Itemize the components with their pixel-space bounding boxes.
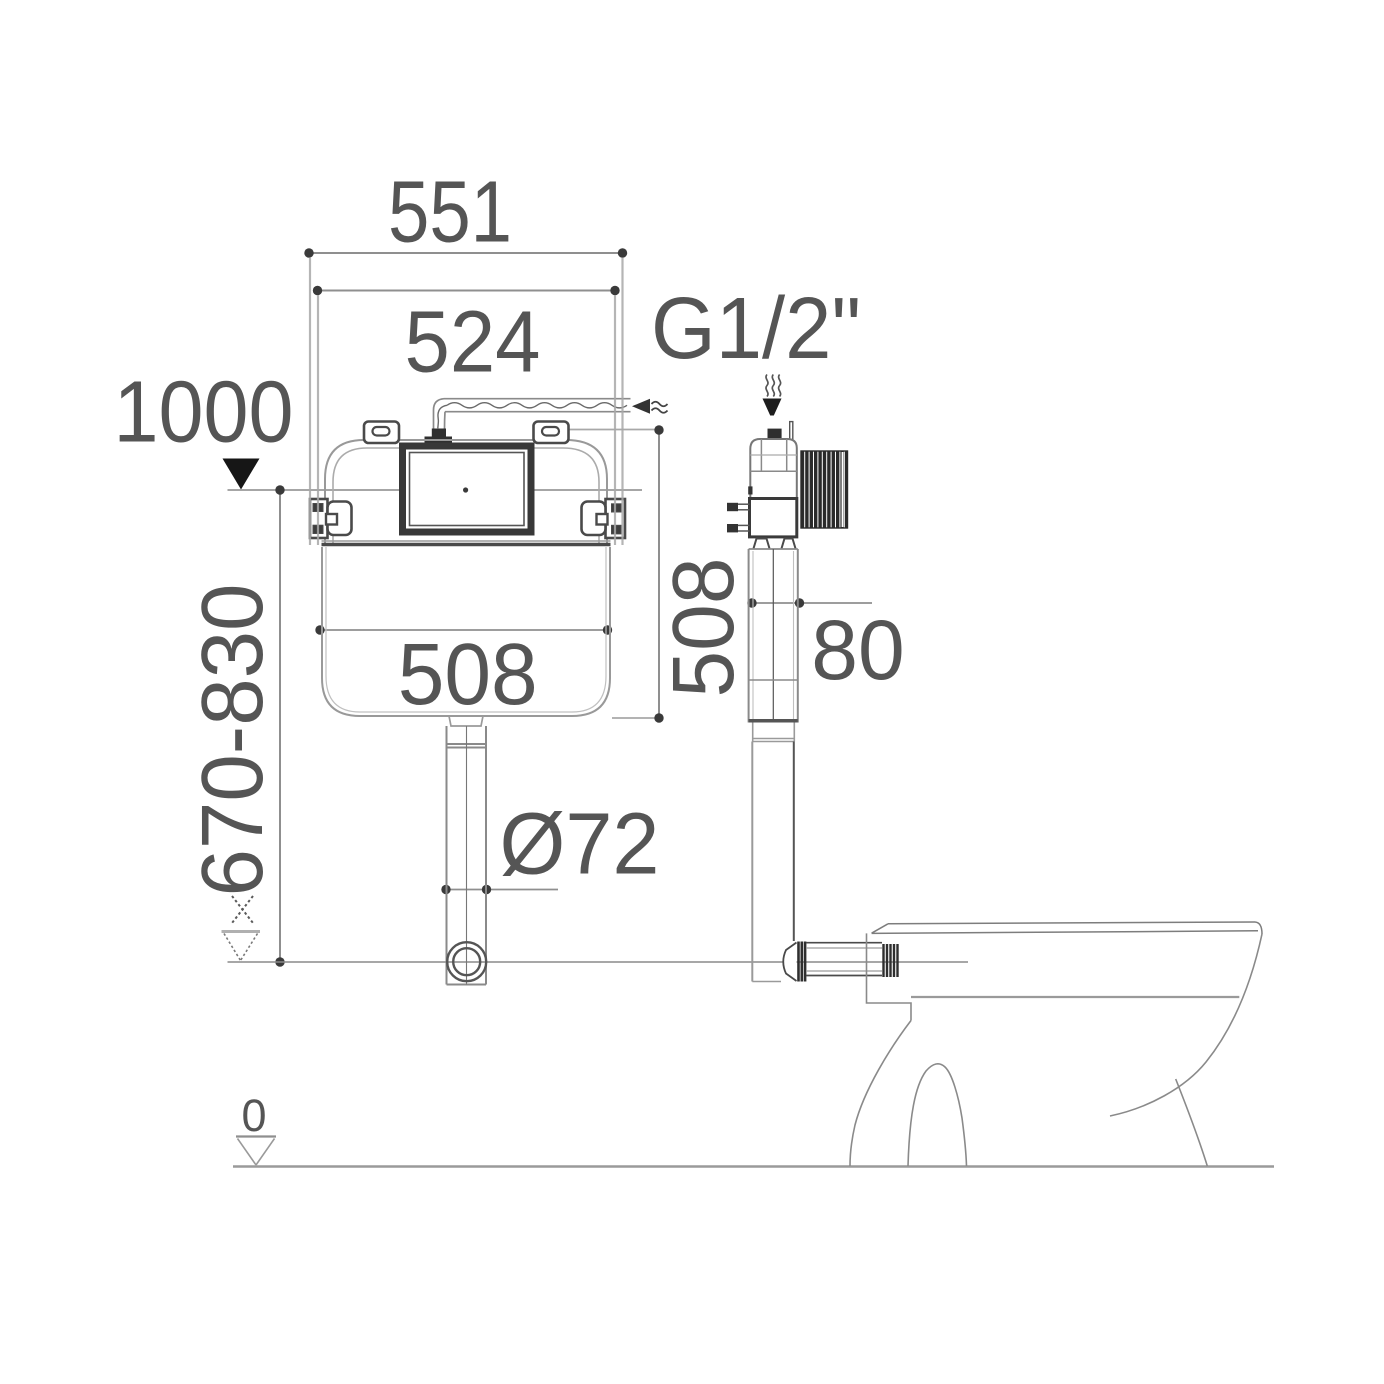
svg-text:1000: 1000	[114, 364, 294, 461]
svg-text:551: 551	[388, 164, 512, 261]
svg-text:508: 508	[398, 626, 538, 723]
svg-text:524: 524	[405, 293, 541, 390]
svg-text:Ø72: Ø72	[500, 796, 660, 893]
svg-text:G1/2": G1/2"	[651, 280, 861, 377]
svg-text:0: 0	[241, 1090, 266, 1141]
svg-text:670-830: 670-830	[184, 584, 281, 897]
svg-text:508: 508	[655, 558, 752, 698]
svg-text:80: 80	[811, 603, 904, 697]
